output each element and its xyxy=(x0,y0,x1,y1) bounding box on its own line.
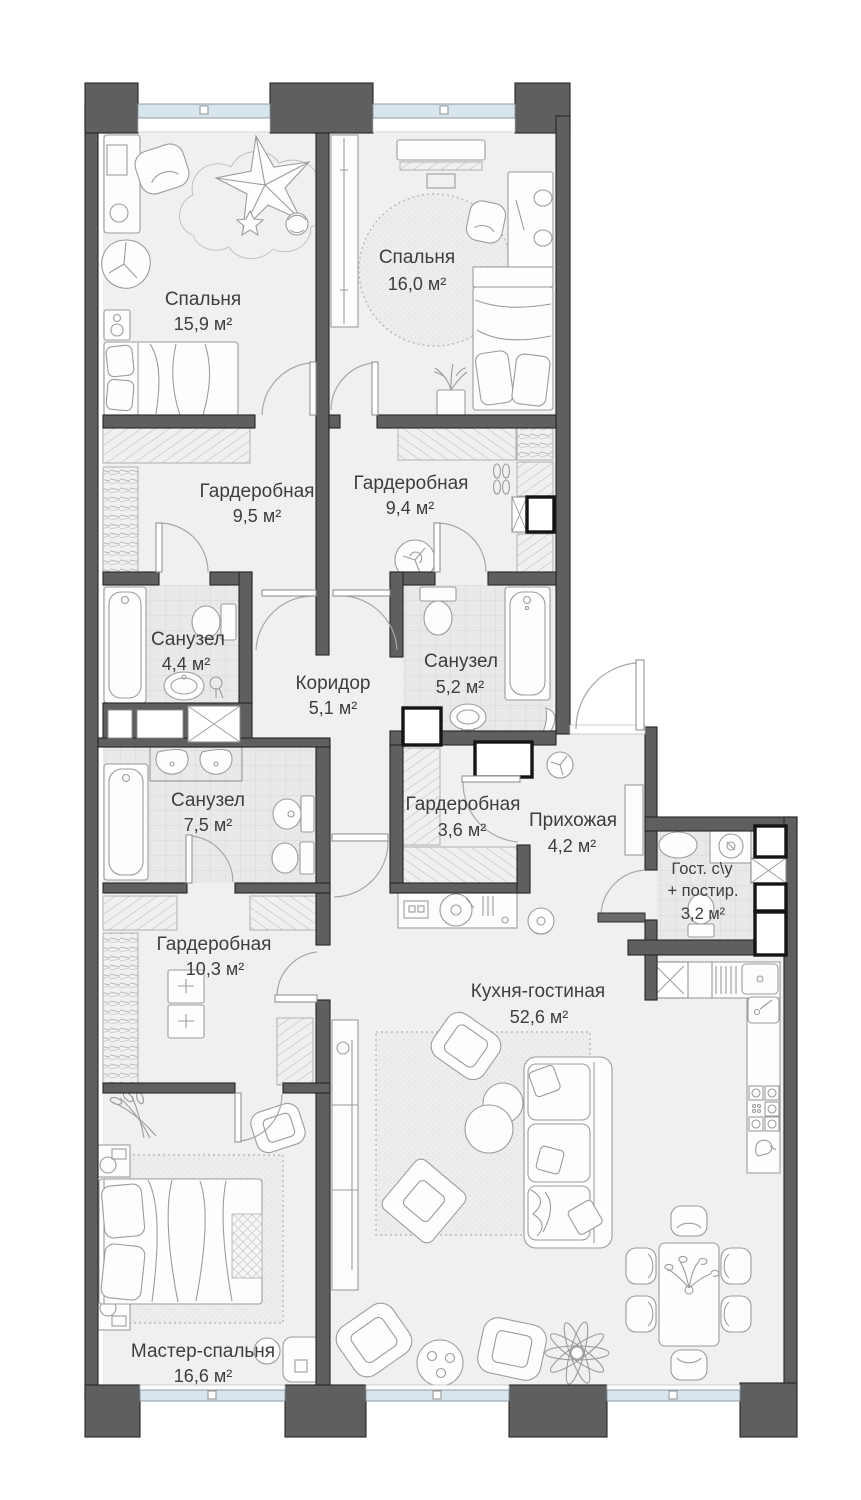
vent-fan-icon xyxy=(547,752,573,778)
room-area-bedroom1: 15,9 м² xyxy=(174,314,232,334)
coffee-table xyxy=(417,1340,463,1386)
wall-bedroom-divider xyxy=(316,133,329,655)
wall xyxy=(316,893,330,945)
room-label-wardrobe95: Гардеробная xyxy=(200,481,315,502)
shaft xyxy=(755,826,786,857)
room-area-bath44: 4,4 м² xyxy=(162,654,210,674)
desk xyxy=(104,135,140,233)
closet-shelves xyxy=(517,427,553,460)
room-label-guest-2: + постир. xyxy=(667,882,738,900)
room-area-kitchen: 52,6 м² xyxy=(510,1007,568,1027)
ball xyxy=(286,213,308,235)
room-label-bath52: Санузел xyxy=(424,651,498,672)
dining-chair xyxy=(721,1248,751,1284)
closet xyxy=(331,135,358,327)
bidet xyxy=(273,796,314,832)
room-label-bedroom2: Спальня xyxy=(379,247,455,268)
closet-rail xyxy=(517,534,553,572)
room-label-wardrobe103: Гардеробная xyxy=(157,934,272,955)
room-area-guest: 3,2 м² xyxy=(681,905,726,923)
room-label-bath75: Санузел xyxy=(171,790,245,811)
pillar xyxy=(509,1385,607,1437)
shaft xyxy=(755,912,786,955)
bed-single xyxy=(104,342,238,416)
dining-chair xyxy=(721,1296,751,1332)
room-area-hallway: 4,2 м² xyxy=(548,836,596,856)
room-area-wardrobe95: 9,5 м² xyxy=(233,506,281,526)
room-area-bedroom2: 16,0 м² xyxy=(388,274,446,294)
pillar xyxy=(85,83,138,133)
desk xyxy=(508,172,553,268)
pouf xyxy=(465,1105,513,1153)
washing-machine xyxy=(710,830,751,863)
sofa xyxy=(524,1057,612,1248)
window-sill xyxy=(607,1385,740,1390)
room-label-bedroom1: Спальня xyxy=(165,289,241,310)
bed-single xyxy=(473,267,553,410)
wall-left xyxy=(85,104,98,1400)
wall-entrance-jamb xyxy=(645,727,657,831)
room-label-bath44: Санузел xyxy=(151,629,225,650)
room-label-wardrobe36: Гардеробная xyxy=(406,794,521,815)
robot-vacuum xyxy=(528,908,554,934)
wall xyxy=(390,745,403,893)
bathtub xyxy=(104,587,146,703)
closet-rail xyxy=(398,424,516,460)
room-label-corridor: Коридор xyxy=(295,673,370,694)
wall xyxy=(103,883,187,893)
shaft xyxy=(403,708,441,745)
room-area-wardrobe103: 10,3 м² xyxy=(186,959,244,979)
room-area-corridor: 5,1 м² xyxy=(309,698,357,718)
room-area-wardrobe36: 3,6 м² xyxy=(438,820,486,840)
wall-right-upper xyxy=(556,116,570,734)
room-label-guest: Гост. с\у xyxy=(671,860,733,878)
duct-box xyxy=(188,706,240,742)
wall xyxy=(645,920,657,1000)
pillar xyxy=(285,1385,366,1437)
speaker xyxy=(104,310,130,340)
wall xyxy=(488,572,556,585)
dining-chair xyxy=(626,1296,656,1332)
dining-chair xyxy=(626,1248,656,1284)
bean-bag xyxy=(102,240,151,288)
wall-niche xyxy=(108,710,132,738)
wall xyxy=(103,1083,235,1093)
wall xyxy=(628,940,757,955)
wall xyxy=(329,415,340,428)
room-label-kitchen: Кухня-гостиная xyxy=(471,981,605,1002)
wall xyxy=(283,1083,330,1093)
room-label-hallway: Прихожая xyxy=(529,810,617,831)
sink xyxy=(164,672,204,700)
dining-chair xyxy=(671,1350,707,1380)
room-area-wardrobe94: 9,4 м² xyxy=(386,498,434,518)
closet-rail xyxy=(517,462,553,496)
closet-shelves xyxy=(103,933,138,1083)
closet-rail xyxy=(103,427,250,463)
wall-master-divider xyxy=(316,1000,330,1385)
wall xyxy=(235,883,330,893)
wall xyxy=(517,845,530,893)
closet-rail xyxy=(403,847,523,883)
wall xyxy=(103,572,159,585)
floor-plan-svg: Спальня 15,9 м² Спальня 16,0 м² Гардероб… xyxy=(0,0,861,1500)
wall xyxy=(103,415,255,428)
room-area-bath75: 7,5 м² xyxy=(184,815,232,835)
shaft xyxy=(527,497,554,532)
wall xyxy=(316,747,330,893)
sideboard xyxy=(398,892,517,928)
duct-box xyxy=(512,497,527,532)
floor-plan: Спальня 15,9 м² Спальня 16,0 м² Гардероб… xyxy=(0,0,861,1500)
wall xyxy=(390,883,530,893)
bathtub xyxy=(505,587,550,700)
wall xyxy=(645,831,657,870)
pillar xyxy=(270,83,373,133)
pillar xyxy=(740,1383,797,1437)
wall-niche xyxy=(137,710,183,738)
window-sill xyxy=(373,118,515,132)
pillar xyxy=(85,1385,140,1437)
closet-shelves xyxy=(103,467,138,573)
window-sill xyxy=(138,118,270,132)
bed-double xyxy=(99,1179,262,1304)
dining-chair xyxy=(671,1206,707,1236)
shaft xyxy=(475,742,532,777)
room-label-wardrobe94: Гардеробная xyxy=(354,473,469,494)
closet-rail xyxy=(103,896,177,930)
tv-console xyxy=(332,1020,358,1290)
closet-rail xyxy=(250,896,317,930)
wall xyxy=(377,415,556,428)
console-mirror xyxy=(625,785,643,855)
room-area-master: 16,6 м² xyxy=(174,1366,232,1386)
room-area-bath52: 5,2 м² xyxy=(436,677,484,697)
toilet xyxy=(272,842,314,874)
bathtub xyxy=(104,764,148,880)
duct-box xyxy=(751,858,786,883)
closet-rail xyxy=(277,1018,313,1085)
room-label-master: Мастер-спальня xyxy=(131,1341,275,1362)
entrance-door xyxy=(570,660,645,734)
wall xyxy=(239,572,252,705)
shaft xyxy=(755,884,786,911)
window-sill xyxy=(366,1385,509,1390)
nightstand xyxy=(98,1145,130,1177)
